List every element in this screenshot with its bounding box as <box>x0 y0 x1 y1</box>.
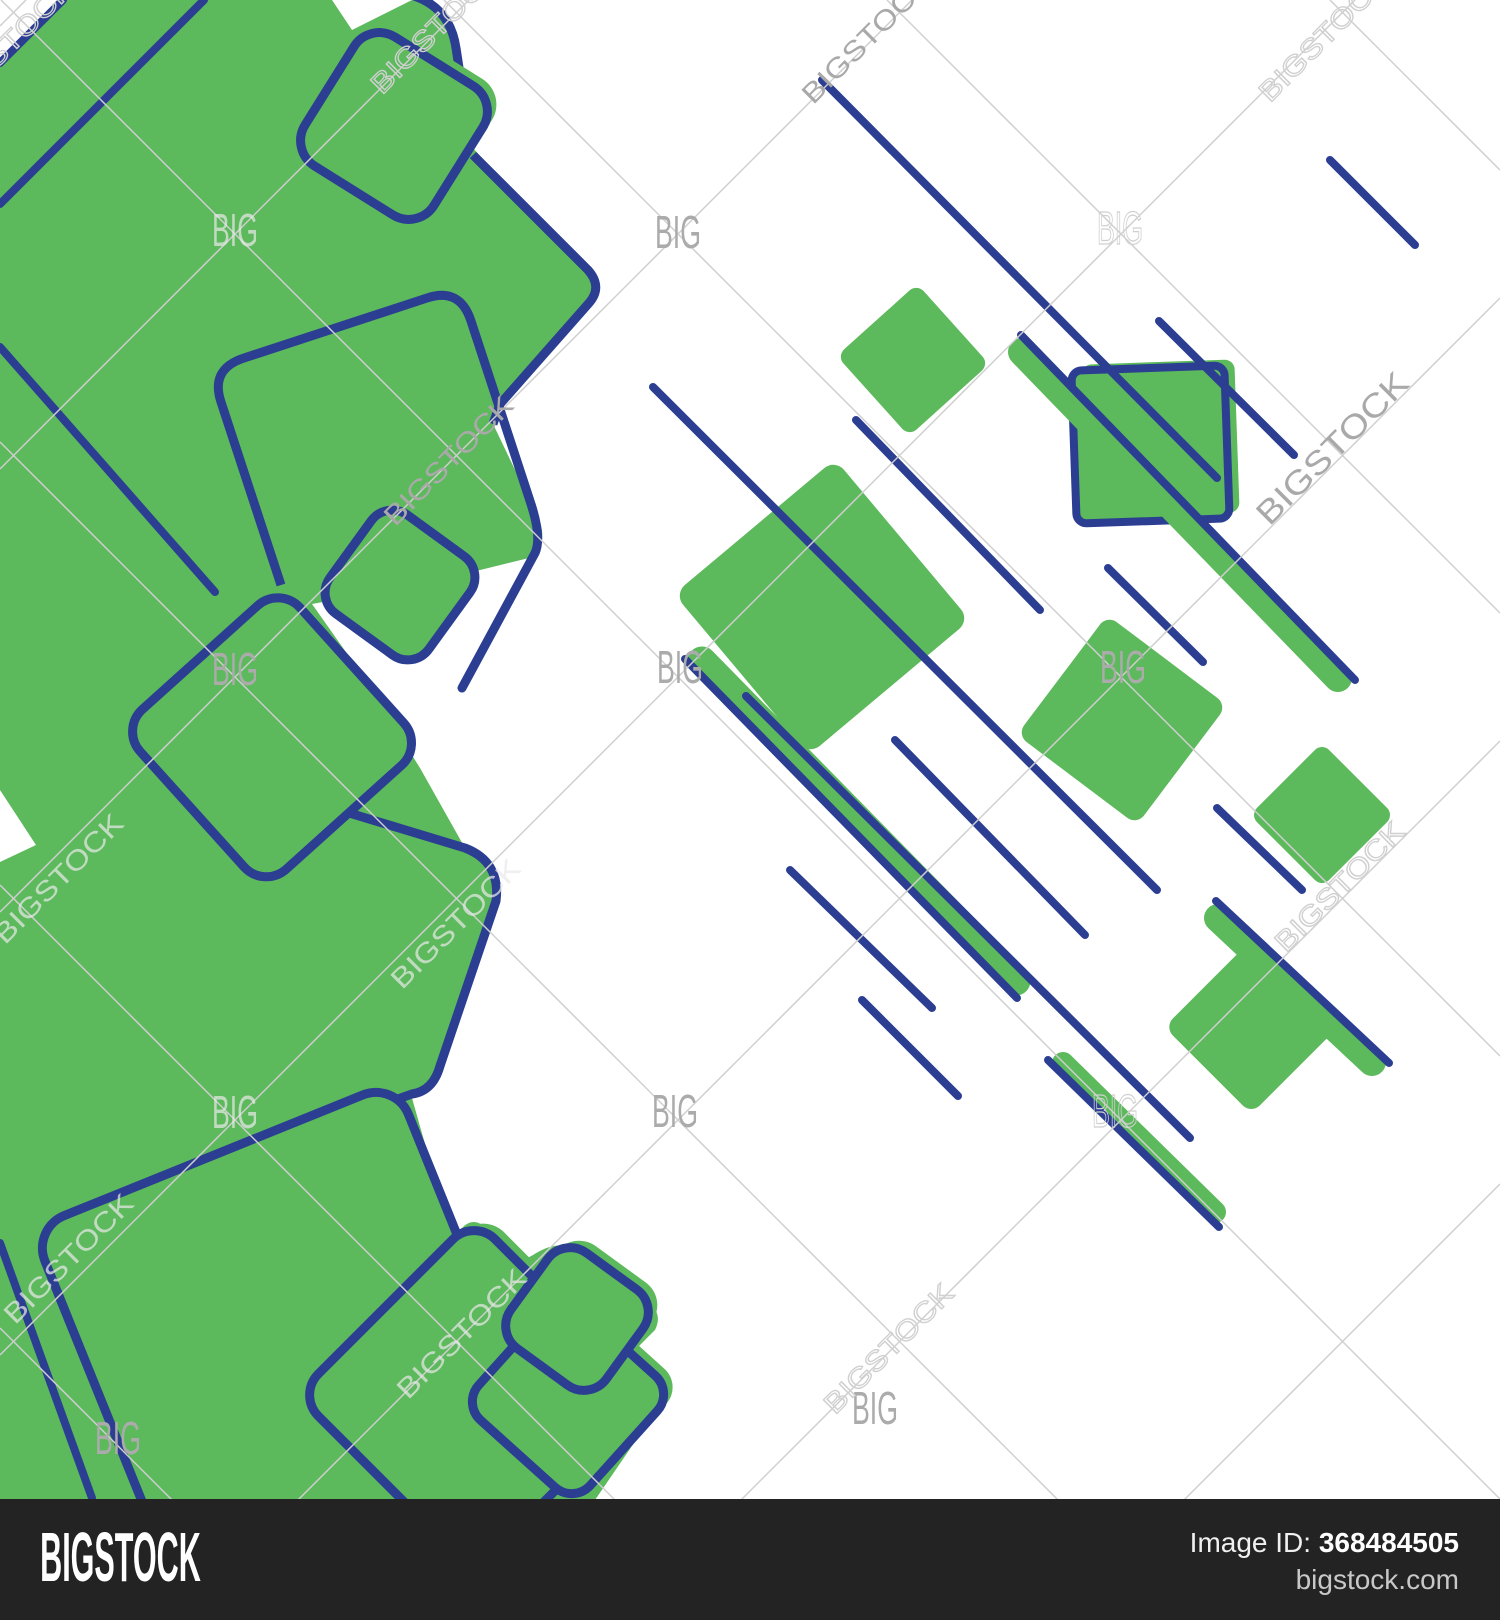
svg-text:bigstock.com: bigstock.com <box>1296 1564 1459 1595</box>
svg-text:BIG: BIG <box>652 1085 698 1137</box>
svg-text:BIGSTOCK: BIGSTOCK <box>40 1518 201 1596</box>
svg-text:BIG: BIG <box>657 641 703 693</box>
svg-text:BIG: BIG <box>95 1412 141 1464</box>
svg-text:BIG: BIG <box>1097 202 1143 254</box>
svg-text:BIG: BIG <box>212 643 258 695</box>
svg-text:BIG: BIG <box>1092 1085 1138 1137</box>
svg-text:BIG: BIG <box>212 204 258 256</box>
svg-text:BIG: BIG <box>1100 641 1146 693</box>
svg-text:Image ID: 368484505: Image ID: 368484505 <box>1190 1527 1459 1558</box>
svg-text:BIG: BIG <box>655 206 701 258</box>
svg-text:BIG: BIG <box>212 1086 258 1138</box>
